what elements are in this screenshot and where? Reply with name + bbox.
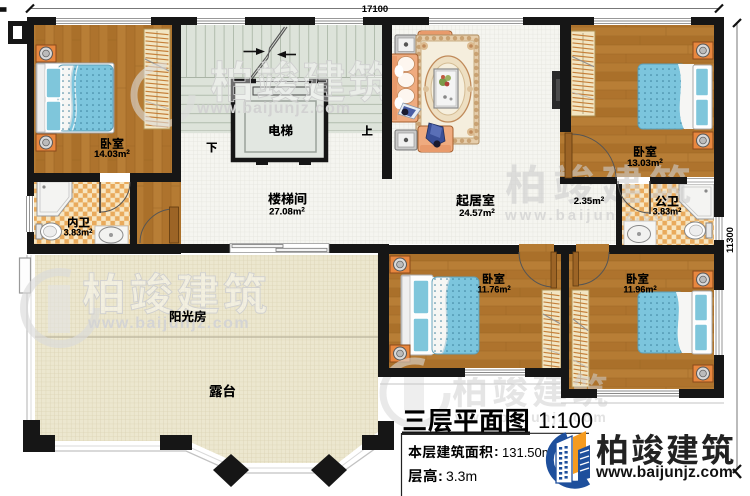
svg-text:14.03m2: 14.03m2 — [94, 149, 130, 160]
svg-text:11.96m2: 11.96m2 — [623, 285, 657, 295]
svg-text:1:100: 1:100 — [538, 408, 593, 433]
svg-text::: : — [438, 469, 443, 485]
svg-text:11.76m2: 11.76m2 — [477, 285, 511, 295]
svg-text:13.03m2: 13.03m2 — [627, 158, 663, 169]
svg-text:27.08m2: 27.08m2 — [269, 207, 305, 218]
svg-text:11300: 11300 — [725, 227, 736, 253]
svg-text:3.83m2: 3.83m2 — [64, 228, 94, 238]
svg-text:131.50m: 131.50m — [502, 445, 553, 460]
svg-text::: : — [494, 443, 499, 459]
svg-text:www.baijunjz.com: www.baijunjz.com — [196, 100, 351, 117]
svg-text:www.baijunjz.com: www.baijunjz.com — [87, 315, 250, 332]
svg-text:17100: 17100 — [362, 4, 388, 15]
svg-text:2.35m2: 2.35m2 — [574, 196, 605, 207]
svg-text:www.baijunjz.com: www.baijunjz.com — [595, 464, 733, 481]
svg-text:24.57m2: 24.57m2 — [459, 208, 495, 219]
svg-text:3.83m2: 3.83m2 — [653, 207, 683, 217]
svg-text:3.3m: 3.3m — [446, 468, 477, 484]
